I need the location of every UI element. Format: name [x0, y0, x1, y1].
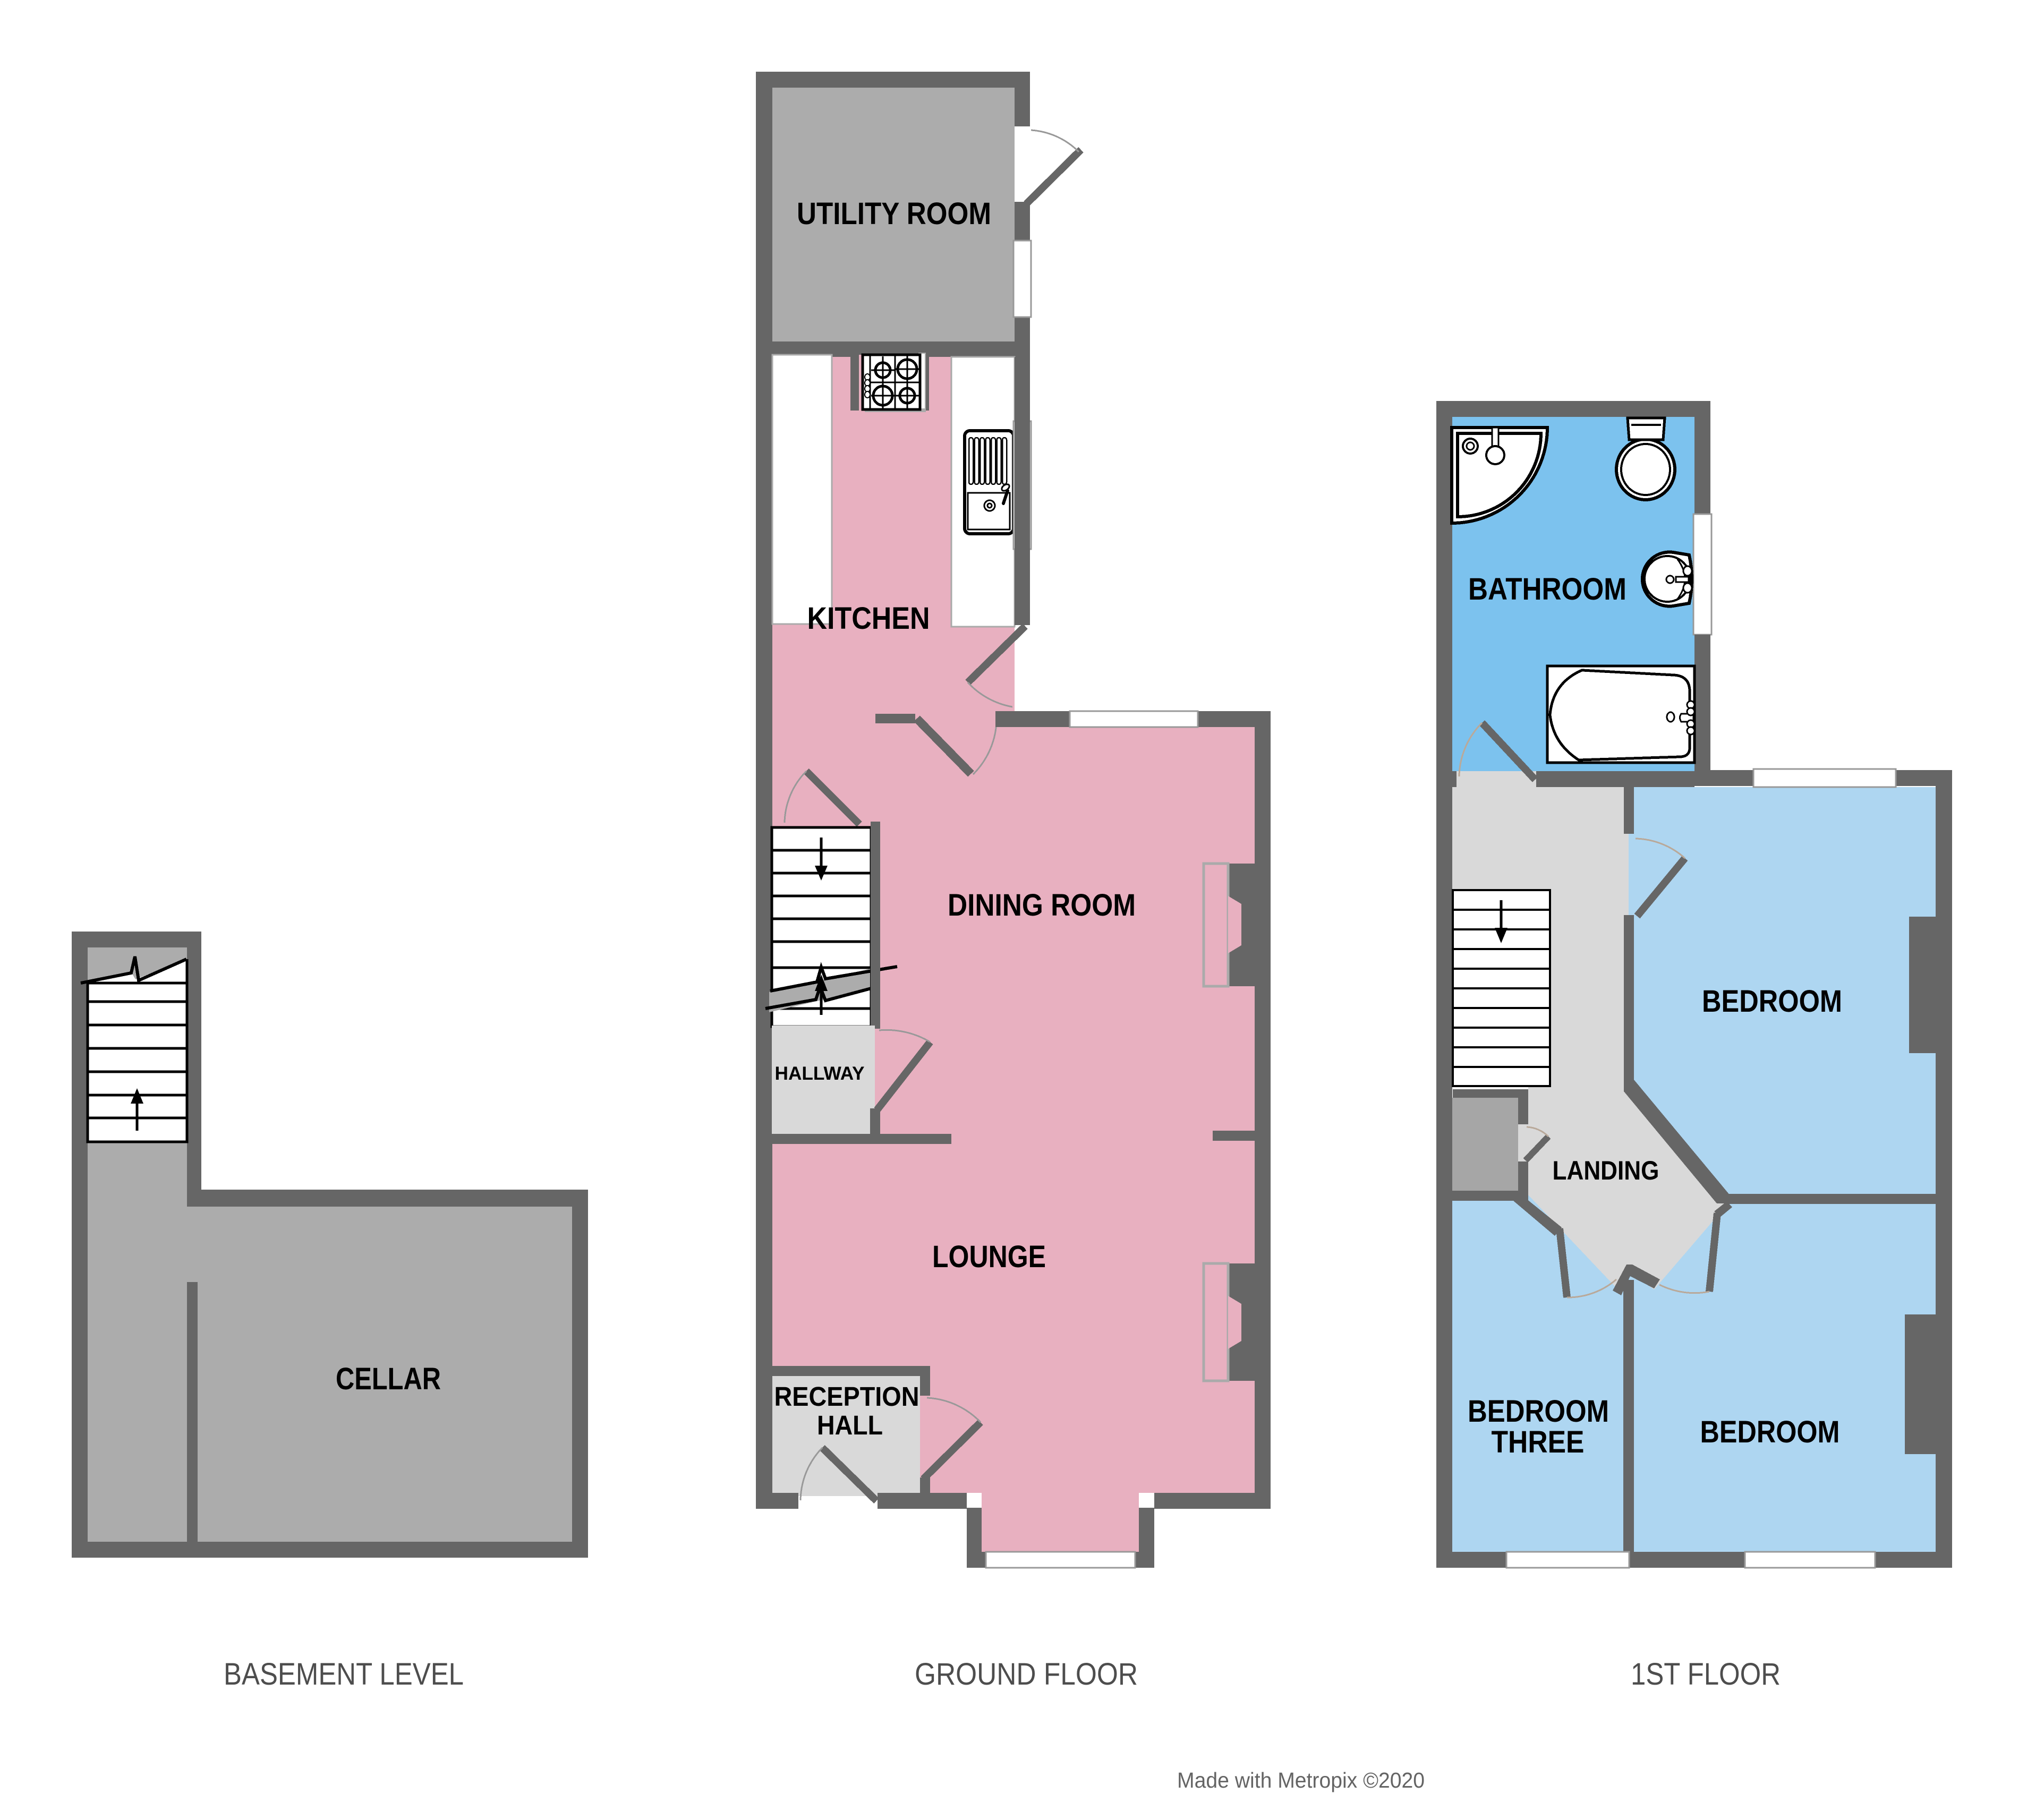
svg-text:DINING ROOM: DINING ROOM: [948, 888, 1136, 922]
svg-text:BEDROOM: BEDROOM: [1702, 984, 1842, 1019]
svg-text:BATHROOM: BATHROOM: [1468, 572, 1626, 606]
svg-text:UTILITY ROOM: UTILITY ROOM: [797, 197, 991, 231]
svg-text:HALLWAY: HALLWAY: [775, 1063, 865, 1084]
svg-text:LANDING: LANDING: [1553, 1156, 1659, 1185]
svg-text:GROUND FLOOR: GROUND FLOOR: [915, 1657, 1138, 1692]
svg-text:BEDROOM: BEDROOM: [1700, 1415, 1840, 1449]
svg-text:CELLAR: CELLAR: [336, 1362, 441, 1396]
svg-text:BEDROOM: BEDROOM: [1468, 1394, 1609, 1429]
svg-text:THREE: THREE: [1492, 1425, 1585, 1459]
svg-text:1ST FLOOR: 1ST FLOOR: [1631, 1657, 1781, 1692]
svg-text:BASEMENT LEVEL: BASEMENT LEVEL: [224, 1657, 464, 1692]
svg-text:KITCHEN: KITCHEN: [807, 601, 930, 636]
svg-text:Made with Metropix ©2020: Made with Metropix ©2020: [1177, 1768, 1425, 1792]
svg-text:RECEPTION: RECEPTION: [774, 1381, 919, 1412]
svg-text:HALL: HALL: [817, 1410, 883, 1440]
svg-text:LOUNGE: LOUNGE: [932, 1240, 1046, 1274]
